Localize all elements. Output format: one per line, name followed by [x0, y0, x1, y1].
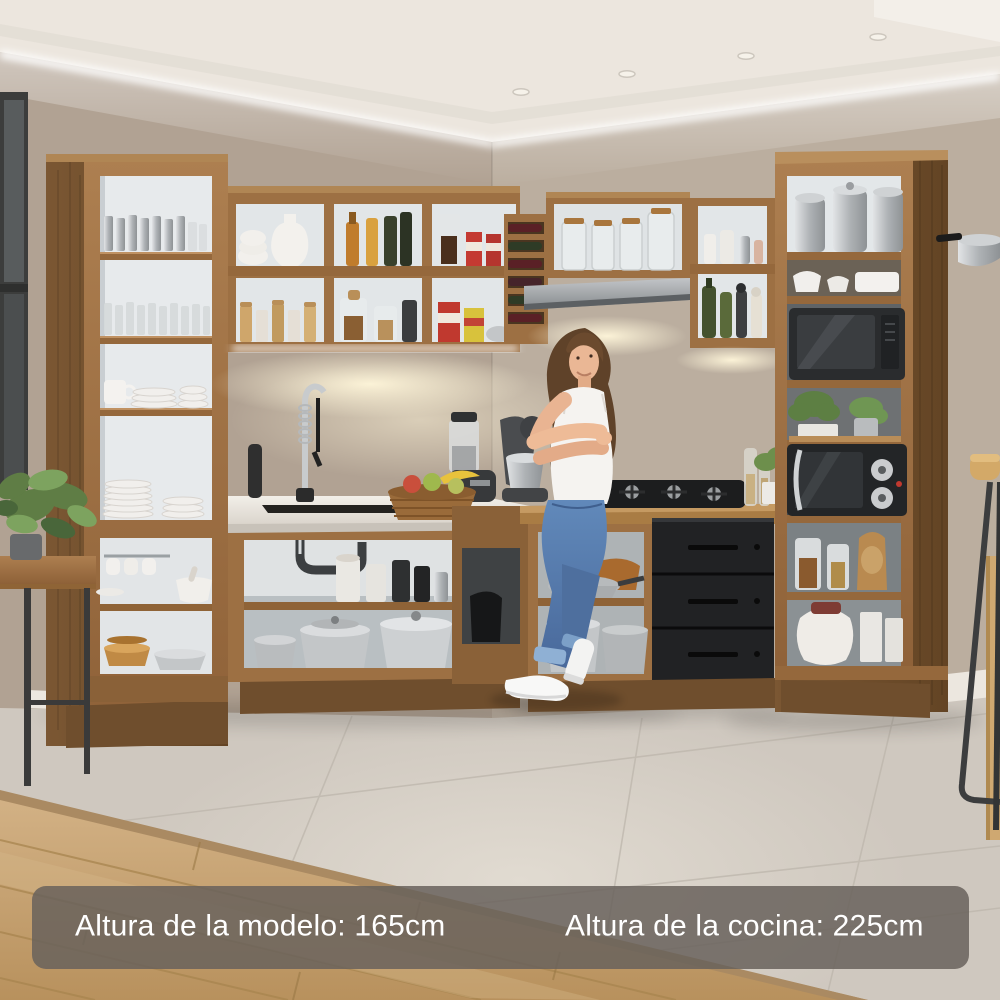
sink	[262, 505, 398, 513]
black-drawer-unit	[652, 518, 774, 682]
kitchen-height-label: Altura de la cocina: 225cm	[565, 909, 924, 943]
model-height-label: Altura de la modelo: 165cm	[75, 909, 445, 943]
wine-rack	[504, 214, 548, 344]
window	[0, 92, 28, 490]
microwave	[789, 308, 905, 380]
kitchen-product-photo: Altura de la modelo: 165cm Altura de la …	[0, 0, 1000, 1000]
spice-jars	[240, 300, 316, 342]
center-upper-cabinet	[546, 192, 690, 278]
right-upper-cubbies	[676, 198, 788, 374]
corner-base-cabinet	[452, 506, 530, 684]
toaster-oven	[787, 444, 907, 516]
kitchen-scene	[0, 0, 1000, 1000]
left-tall-cabinet	[46, 154, 228, 748]
soap-dispenser	[248, 444, 262, 498]
height-banner: Altura de la modelo: 165cm Altura de la …	[32, 886, 969, 969]
right-tall-cabinet	[775, 150, 948, 718]
